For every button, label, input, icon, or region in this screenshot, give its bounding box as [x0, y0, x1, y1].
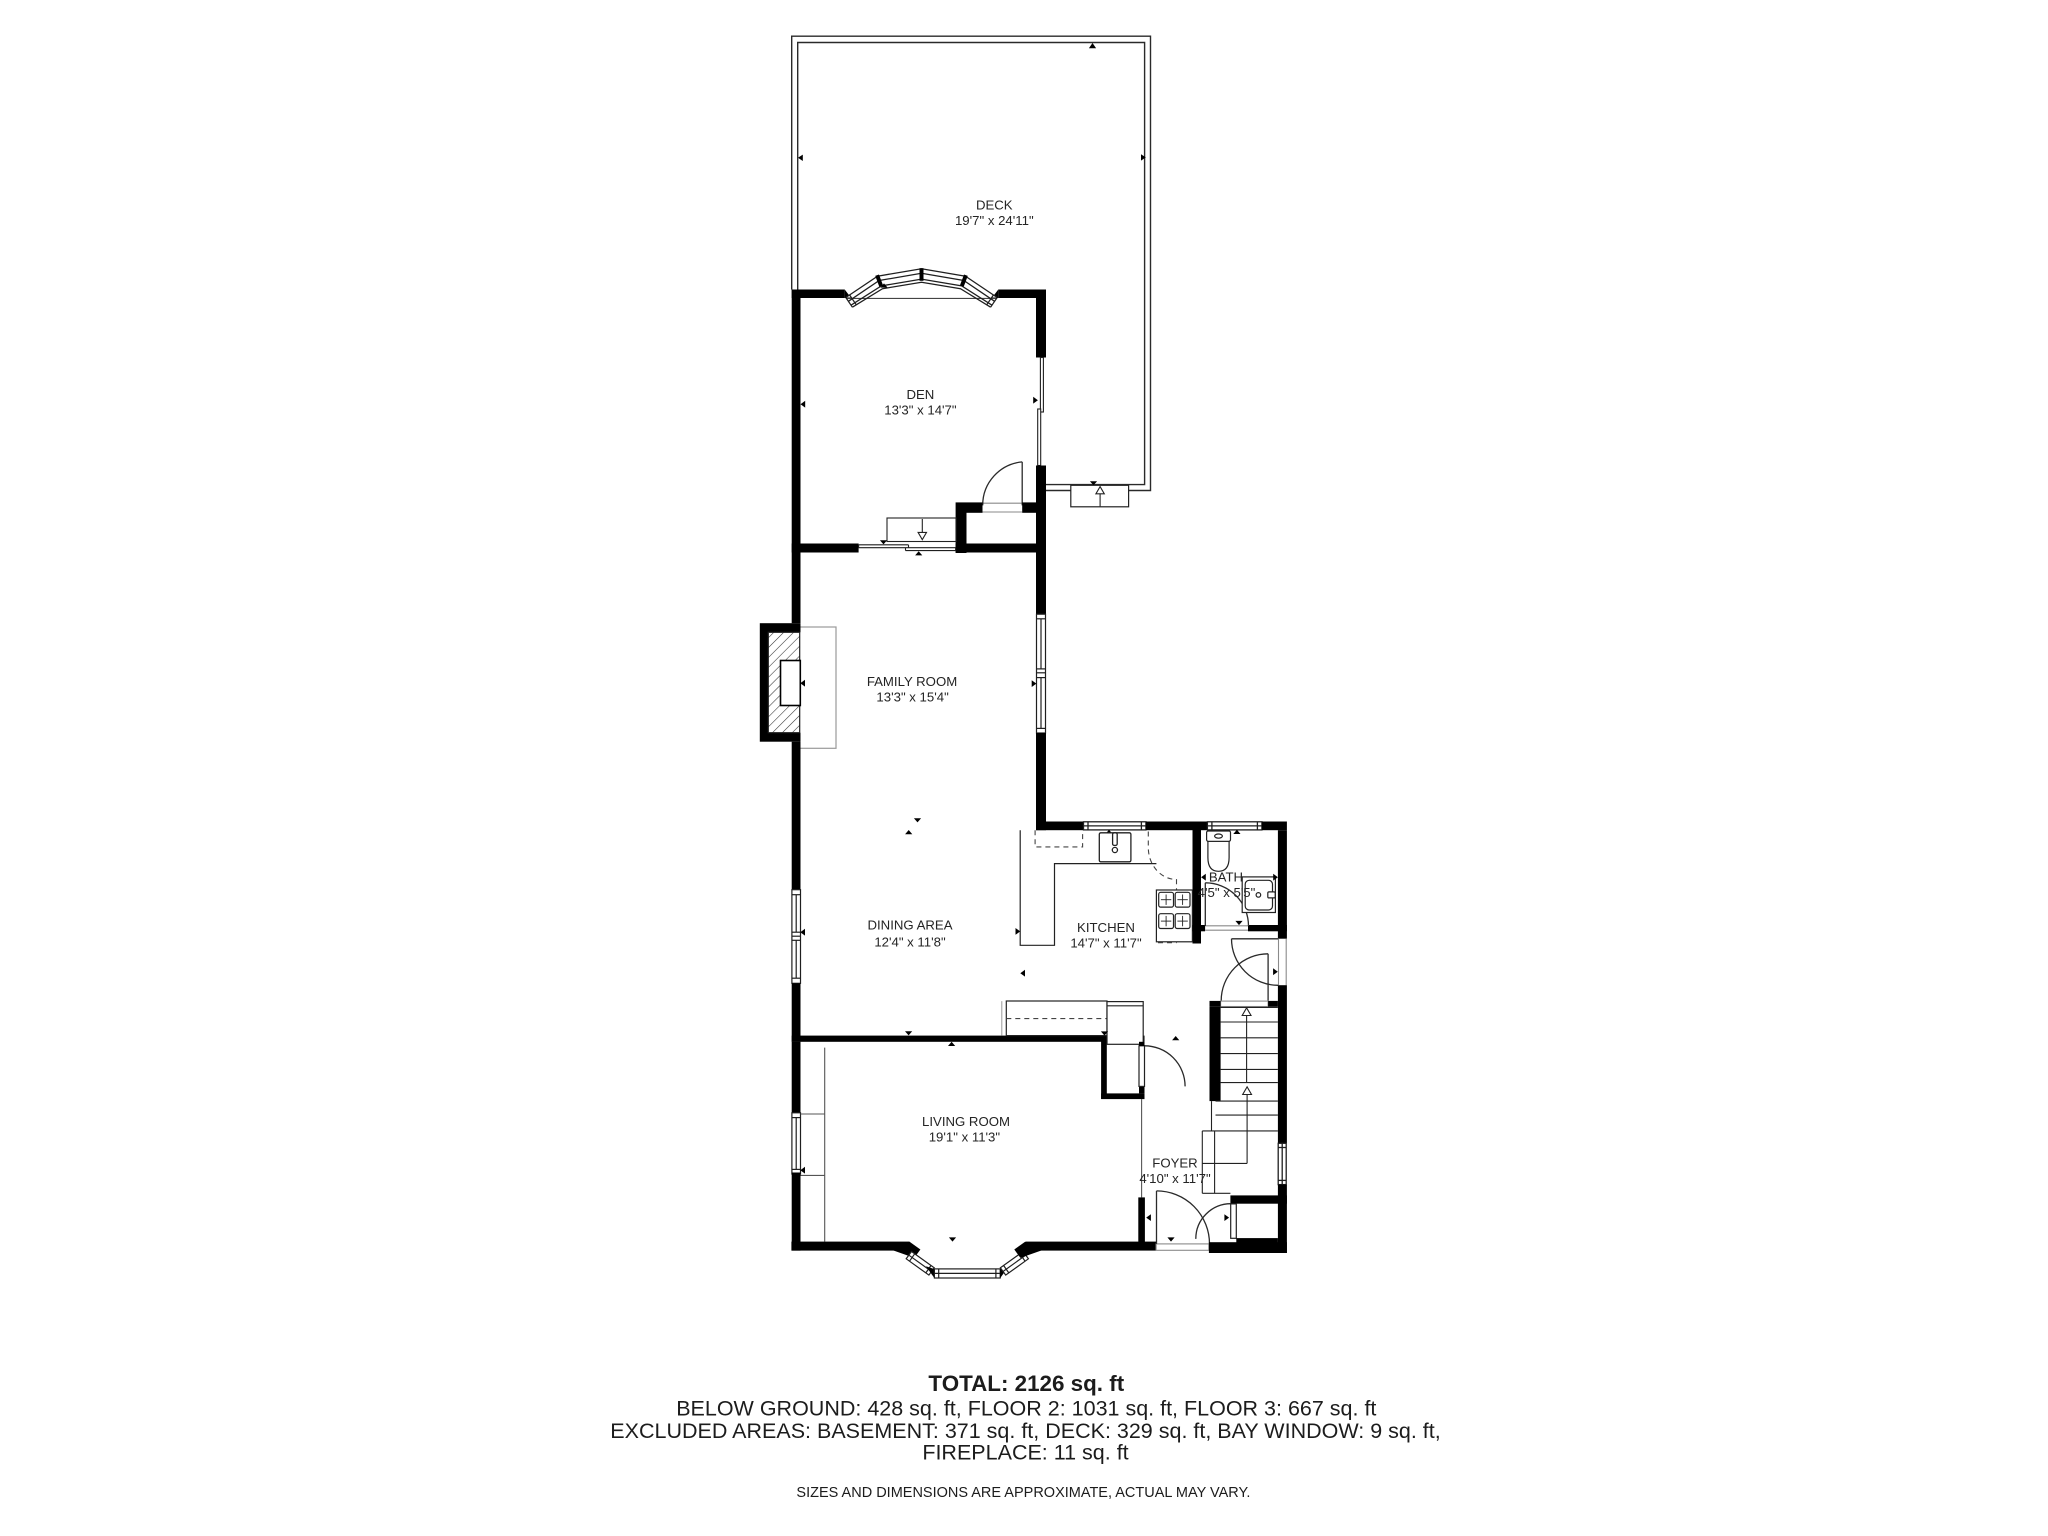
svg-text:KITCHEN: KITCHEN: [1077, 920, 1135, 935]
svg-text:19'1" x 11'3": 19'1" x 11'3": [929, 1129, 1001, 1144]
svg-text:13'3" x 14'7": 13'3" x 14'7": [884, 403, 957, 418]
svg-text:14'7" x 11'7": 14'7" x 11'7": [1070, 936, 1142, 951]
svg-text:DINING AREA: DINING AREA: [867, 918, 952, 933]
svg-text:4'5" x 5'5": 4'5" x 5'5": [1198, 885, 1256, 900]
svg-text:4'10" x 11'7": 4'10" x 11'7": [1139, 1171, 1211, 1186]
svg-text:FAMILY ROOM: FAMILY ROOM: [867, 674, 957, 689]
svg-text:13'3" x 15'4": 13'3" x 15'4": [876, 689, 949, 704]
svg-text:LIVING ROOM: LIVING ROOM: [922, 1114, 1010, 1129]
svg-text:DECK: DECK: [976, 197, 1013, 212]
svg-text:DEN: DEN: [906, 387, 934, 402]
svg-text:FIREPLACE: 11 sq. ft: FIREPLACE: 11 sq. ft: [922, 1441, 1128, 1465]
svg-text:12'4" x 11'8": 12'4" x 11'8": [874, 934, 946, 949]
svg-text:SIZES AND DIMENSIONS ARE APPRO: SIZES AND DIMENSIONS ARE APPROXIMATE, AC…: [796, 1485, 1250, 1501]
svg-text:BATH: BATH: [1209, 870, 1243, 885]
svg-text:FOYER: FOYER: [1152, 1156, 1197, 1171]
svg-text:EXCLUDED AREAS: BASEMENT: 371: EXCLUDED AREAS: BASEMENT: 371 sq. ft, DE…: [610, 1419, 1440, 1443]
svg-text:19'7" x 24'11": 19'7" x 24'11": [955, 213, 1034, 228]
svg-text:TOTAL: 2126 sq. ft: TOTAL: 2126 sq. ft: [928, 1371, 1124, 1396]
svg-text:BELOW GROUND: 428 sq. ft, FLOO: BELOW GROUND: 428 sq. ft, FLOOR 2: 1031 …: [676, 1397, 1376, 1421]
